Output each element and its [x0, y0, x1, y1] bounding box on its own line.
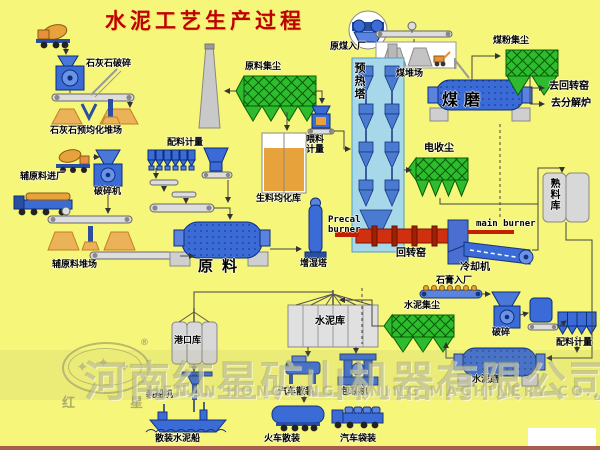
aux-material-piles-icon: [48, 226, 135, 250]
label-feeding-metering: 喂料计量: [306, 135, 328, 155]
chimney-icon: [199, 44, 220, 128]
electrostatic-precipitator-icon: [408, 158, 468, 196]
label-ship-loader: 装船机: [146, 390, 173, 400]
label-coal-powder-dust-collection: 煤粉集尘: [493, 36, 529, 46]
label-batching-metering-2: 配料计量: [556, 338, 592, 348]
label-raw-material-dust-collection: 原料集尘: [245, 62, 281, 72]
raw-material-dust-collector-icon: [236, 76, 316, 121]
label-preheater-tower: 预热塔: [354, 62, 364, 101]
label-truck-bulk-loading: 汽车散装: [278, 387, 314, 397]
main-burner-pipe-icon: [468, 230, 514, 234]
label-batching-metering-1: 配料计量: [167, 138, 203, 148]
label-electrostatic-precipitator: 电收尘: [424, 144, 454, 154]
label-raw-mill: 原料: [198, 261, 246, 271]
label-packing-machine: 包装机: [341, 387, 368, 397]
packing-machine-icon: [338, 354, 378, 385]
label-to-calciner: 去分解炉: [551, 99, 591, 109]
label-humidifying-tower: 增湿塔: [300, 259, 327, 269]
gypsum-hopper-icon: [528, 298, 558, 330]
label-precal-burner: Precal burner: [328, 215, 374, 235]
diagram-title: 水泥工艺生产过程: [80, 5, 330, 35]
cooler-icon: [464, 242, 533, 264]
limestone-crusher-icon: [56, 56, 84, 90]
gypsum-crusher-icon: [492, 292, 520, 328]
registered-trademark-icon: ®: [140, 338, 149, 348]
logo-char-xing: 星: [130, 392, 143, 411]
label-cement-dust-collection: 水泥集尘: [404, 301, 440, 311]
cement-mill-icon: [454, 348, 545, 386]
label-rotary-kiln: 回转窑: [396, 249, 426, 259]
label-limestone-crushing: 石灰石破碎: [86, 59, 131, 69]
label-coal-mill: 煤磨: [442, 95, 486, 105]
batching-hoppers-icon: [148, 148, 232, 212]
gypsum-conveyor-icon: [420, 286, 482, 299]
label-auxiliary-material-yard: 辅原料堆场: [52, 260, 97, 270]
logo-char-hong: 红: [62, 392, 75, 411]
bag-truck-icon: [332, 407, 383, 428]
cement-process-flow-diagram: 水泥工艺生产过程 石灰石破碎 石灰石预均化堆场 原料集尘 原煤入厂 煤堆场 煤粉…: [0, 0, 600, 450]
label-bulk-cement-ship: 散装水泥船: [155, 434, 200, 444]
label-auxiliary-material-entry: 辅原料进厂: [20, 172, 65, 182]
aux-crusher-icon: [94, 150, 122, 186]
logo-star-icon: ✦: [97, 354, 110, 372]
logo-star-icon: ✦: [76, 358, 89, 376]
label-cement-silo: 水泥库: [315, 317, 345, 327]
label-main-burner: main burner: [476, 219, 546, 229]
label-clinker-silo: 熟料库: [548, 178, 558, 211]
label-crusher-machine: 破碎机: [94, 187, 121, 197]
label-cement-mill: 水泥磨: [472, 375, 499, 385]
label-train-bulk-loading: 火车散装: [264, 434, 300, 444]
label-crushing: 破碎: [492, 328, 510, 338]
bulk-cement-ship-icon: [146, 402, 226, 432]
logo-star-icon: ✦: [118, 358, 131, 376]
label-limestone-preblending-yard: 石灰石预均化堆场: [50, 126, 122, 136]
aux-yard-conveyor-icon: [90, 252, 180, 259]
limestone-preblending-piles-icon: [52, 99, 138, 124]
label-port-silo: 港口库: [174, 336, 201, 346]
humidifying-tower-icon: [305, 198, 326, 258]
ship-loader-icon: [182, 372, 212, 412]
label-to-rotary-kiln: 去回转窑: [549, 82, 589, 92]
mixer-truck2-icon: [56, 148, 90, 173]
raw-meal-silo-icon: [262, 133, 306, 193]
bottom-border-strip: [0, 446, 600, 450]
label-coal-yard: 煤堆场: [396, 69, 423, 79]
label-cooler: 冷却机: [460, 263, 490, 273]
train-wagon-icon: [272, 406, 324, 431]
label-raw-meal-homogenizing-silo: 生料均化库: [256, 194, 301, 204]
label-gypsum-entry: 石膏入厂: [436, 276, 472, 286]
cement-dust-collector-icon: [384, 315, 454, 352]
mixer-truck-icon: [36, 22, 70, 48]
bottom-right-white-patch: [528, 428, 596, 448]
label-truck-bag-loading: 汽车袋装: [340, 434, 376, 444]
truck-bulk-loader-icon: [286, 356, 320, 384]
label-raw-coal-entry: 原煤入厂: [330, 42, 366, 52]
